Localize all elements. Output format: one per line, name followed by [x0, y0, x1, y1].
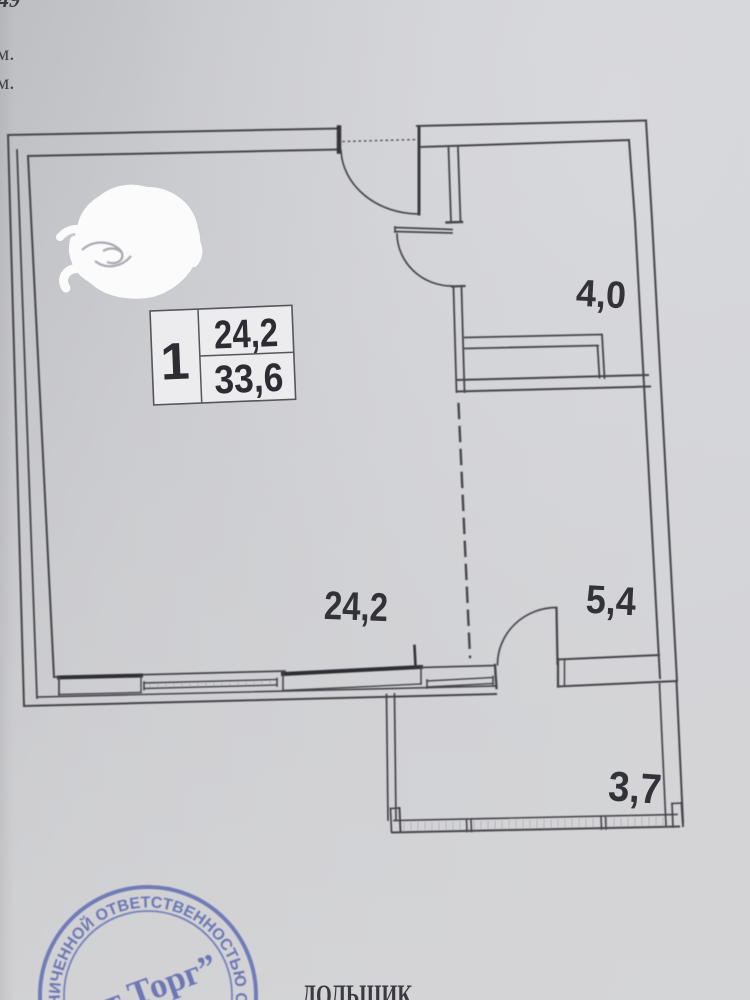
svg-text:м.: м. [0, 70, 15, 94]
svg-text:3,7: 3,7 [607, 762, 663, 813]
svg-text:ДОЛЬЩИК: ДОЛЬЩИК [302, 979, 412, 1000]
svg-text:33,6: 33,6 [213, 356, 284, 403]
svg-text:м.: м. [0, 41, 15, 65]
svg-text:5,4: 5,4 [585, 578, 638, 625]
svg-text:24,2: 24,2 [323, 584, 388, 630]
svg-text:49: 49 [0, 0, 20, 12]
svg-text:24,2: 24,2 [213, 311, 279, 358]
svg-text:4,0: 4,0 [575, 273, 627, 318]
svg-text:1: 1 [159, 332, 190, 391]
